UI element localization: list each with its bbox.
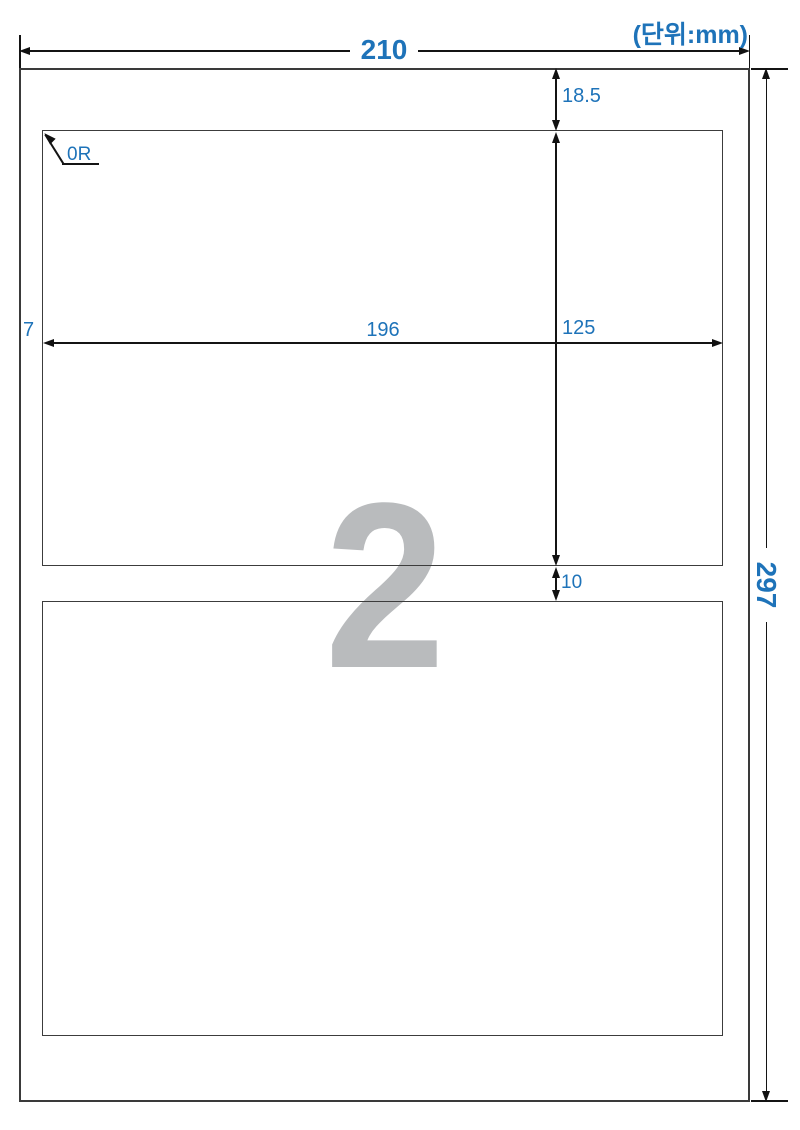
label-width-value: 196 [355, 320, 411, 340]
corner-radius-value: 0R [67, 145, 91, 164]
top-margin-value: 18.5 [562, 86, 601, 106]
label-slot-2 [42, 601, 723, 1036]
arrowhead-left-icon [19, 47, 30, 55]
arrowhead-up-icon [552, 132, 560, 143]
label-slot-1 [42, 130, 723, 566]
page-height-dim-line-top [766, 79, 768, 548]
arrowhead-up-icon [762, 68, 770, 79]
label-height-dim-line [555, 143, 557, 555]
row-gap-value: 10 [561, 573, 582, 592]
arrowhead-up-icon [552, 567, 560, 578]
arrowhead-right-icon [712, 339, 723, 347]
label-sheet-dimension-diagram: 2 210 (단위:mm) 297 18.5 125 10 196 7 0R [0, 0, 800, 1130]
arrowhead-down-icon [552, 590, 560, 601]
top-margin-dim-line [555, 79, 557, 120]
left-margin-value: 7 [23, 320, 34, 340]
label-height-value: 125 [562, 318, 595, 338]
arrowhead-down-icon [552, 120, 560, 131]
page-height-dim-line-bottom [766, 622, 768, 1091]
row-gap-dim-line [555, 577, 557, 590]
page-width-dim-line-right [418, 50, 739, 52]
page-width-dim-line-left [30, 50, 350, 52]
page-height-value: 297 [752, 562, 780, 609]
arrowhead-down-icon [552, 555, 560, 566]
page-width-value: 210 [350, 36, 418, 64]
arrowhead-down-icon [762, 1091, 770, 1102]
label-width-dim-line [54, 342, 712, 344]
arrowhead-left-icon [43, 339, 54, 347]
arrowhead-up-icon [552, 68, 560, 79]
unit-note: (단위:mm) [615, 23, 748, 48]
